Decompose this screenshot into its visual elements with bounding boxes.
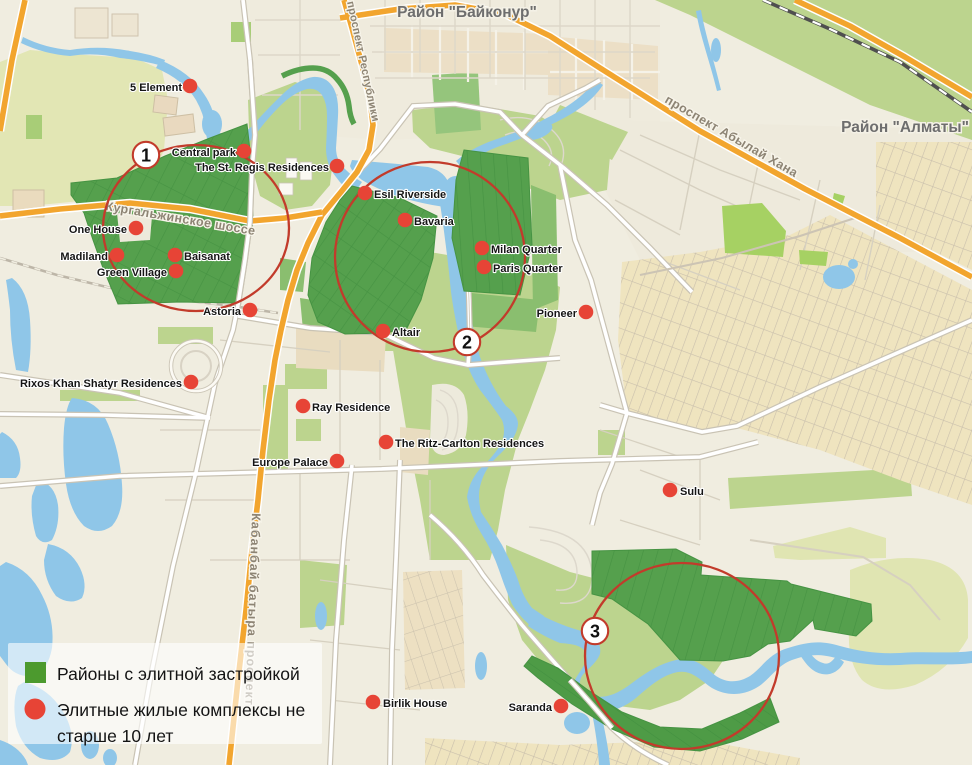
svg-text:1: 1: [141, 146, 151, 166]
svg-text:Esil Riverside: Esil Riverside: [374, 189, 446, 201]
svg-text:Altair: Altair: [392, 327, 421, 339]
svg-text:3: 3: [590, 622, 600, 642]
svg-text:The St. Regis Residences: The St. Regis Residences: [195, 162, 329, 174]
svg-text:Район "Алматы": Район "Алматы": [841, 119, 969, 136]
svg-text:Элитные жилые комплексы не: Элитные жилые комплексы не: [57, 700, 305, 720]
svg-text:Baisanat: Baisanat: [184, 251, 230, 263]
svg-text:The Ritz-Carlton Residences: The Ritz-Carlton Residences: [395, 438, 544, 450]
svg-text:Milan Quarter: Milan Quarter: [491, 244, 563, 256]
svg-text:Bavaria: Bavaria: [414, 216, 455, 228]
svg-text:Central park: Central park: [172, 147, 237, 159]
svg-text:Pioneer: Pioneer: [537, 308, 578, 320]
svg-text:старше 10 лет: старше 10 лет: [57, 726, 173, 746]
svg-text:Birlik House: Birlik House: [383, 698, 447, 710]
svg-text:Sulu: Sulu: [680, 486, 704, 498]
svg-text:Madiland: Madiland: [60, 251, 108, 263]
svg-text:Районы с элитной застройкой: Районы с элитной застройкой: [57, 664, 300, 684]
svg-text:Rixos Khan Shatyr Residences: Rixos Khan Shatyr Residences: [20, 378, 182, 390]
svg-text:5 Element: 5 Element: [130, 82, 182, 94]
svg-text:One House: One House: [69, 224, 127, 236]
svg-text:Paris Quarter: Paris Quarter: [493, 263, 563, 275]
svg-text:2: 2: [462, 333, 472, 353]
svg-text:Ray Residence: Ray Residence: [312, 402, 390, 414]
svg-text:Район "Байконур": Район "Байконур": [397, 4, 537, 21]
svg-text:Saranda: Saranda: [509, 702, 553, 714]
svg-text:Europe Palace: Europe Palace: [252, 457, 328, 469]
svg-text:Green Village: Green Village: [97, 267, 167, 279]
svg-text:Astoria: Astoria: [203, 306, 242, 318]
